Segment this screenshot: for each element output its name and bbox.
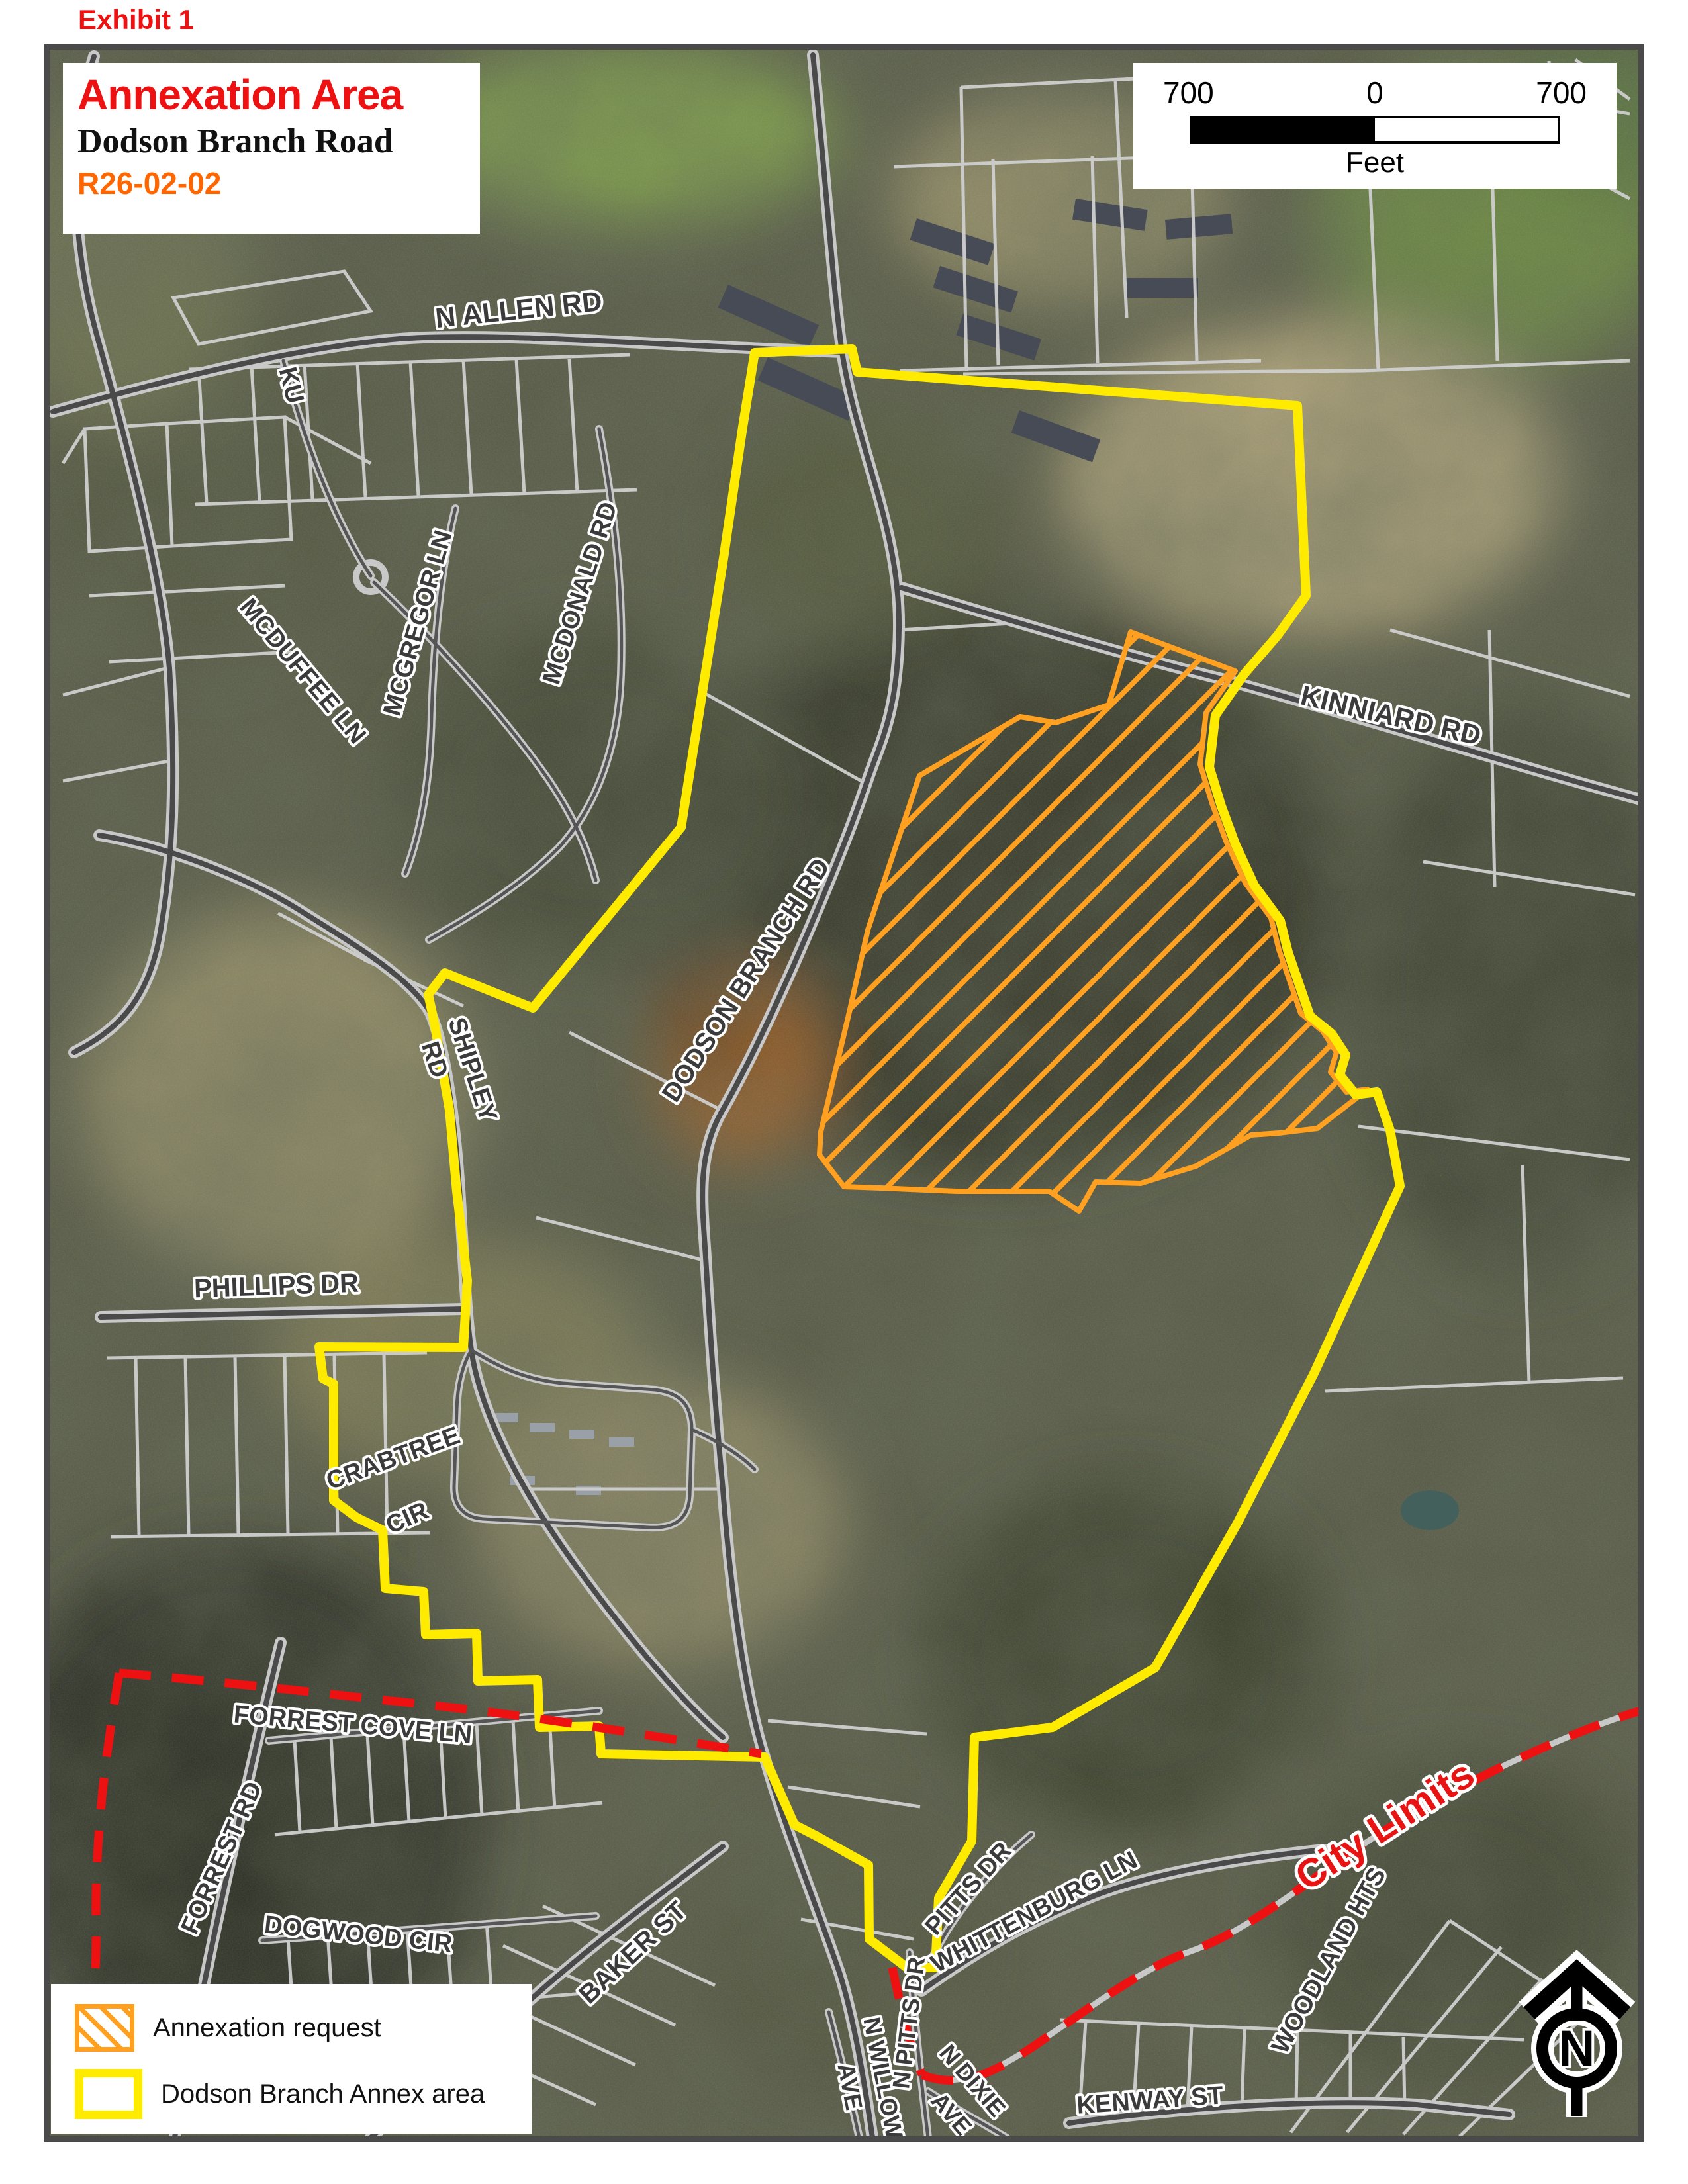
map-title: Annexation Area: [77, 69, 465, 120]
scale-bar: 700 0 700 Feet: [1133, 63, 1617, 189]
scale-left-value: 700: [1163, 75, 1214, 111]
scale-bar-graphic: [1190, 116, 1560, 144]
title-box: Annexation Area Dodson Branch Road R26-0…: [63, 63, 480, 234]
north-letter: N: [1559, 2021, 1595, 2077]
aerial-map: N ALLEN RD KINNIARD RD MCDUFFEE LN MCGRE…: [50, 50, 1638, 2136]
exhibit-label: Exhibit 1: [78, 4, 194, 36]
legend-item-annexation-request: Annexation request: [75, 2004, 381, 2052]
legend-item-annex-area: Dodson Branch Annex area: [75, 2069, 485, 2119]
map-frame: N ALLEN RD KINNIARD RD MCDUFFEE LN MCGRE…: [44, 44, 1644, 2142]
legend-label-annex-area: Dodson Branch Annex area: [161, 2079, 485, 2109]
map-subtitle: Dodson Branch Road: [77, 120, 465, 163]
case-number: R26-02-02: [77, 163, 465, 203]
scale-units: Feet: [1133, 146, 1617, 179]
north-arrow-icon: N: [1513, 1950, 1642, 2126]
pond: [1401, 1490, 1459, 1530]
exhibit-page: Exhibit 1: [0, 0, 1688, 2184]
annex-area-swatch-icon: [75, 2069, 142, 2119]
road-label-phillips-dr: PHILLIPS DR: [193, 1269, 359, 1304]
scale-bar-filled-half: [1192, 118, 1375, 141]
legend-label-annexation-request: Annexation request: [153, 2013, 381, 2043]
scale-right-value: 700: [1536, 75, 1587, 111]
annexation-request-swatch-icon: [75, 2004, 134, 2052]
legend: Annexation request Dodson Branch Annex a…: [51, 1984, 532, 2134]
scale-zero-value: 0: [1366, 75, 1383, 111]
